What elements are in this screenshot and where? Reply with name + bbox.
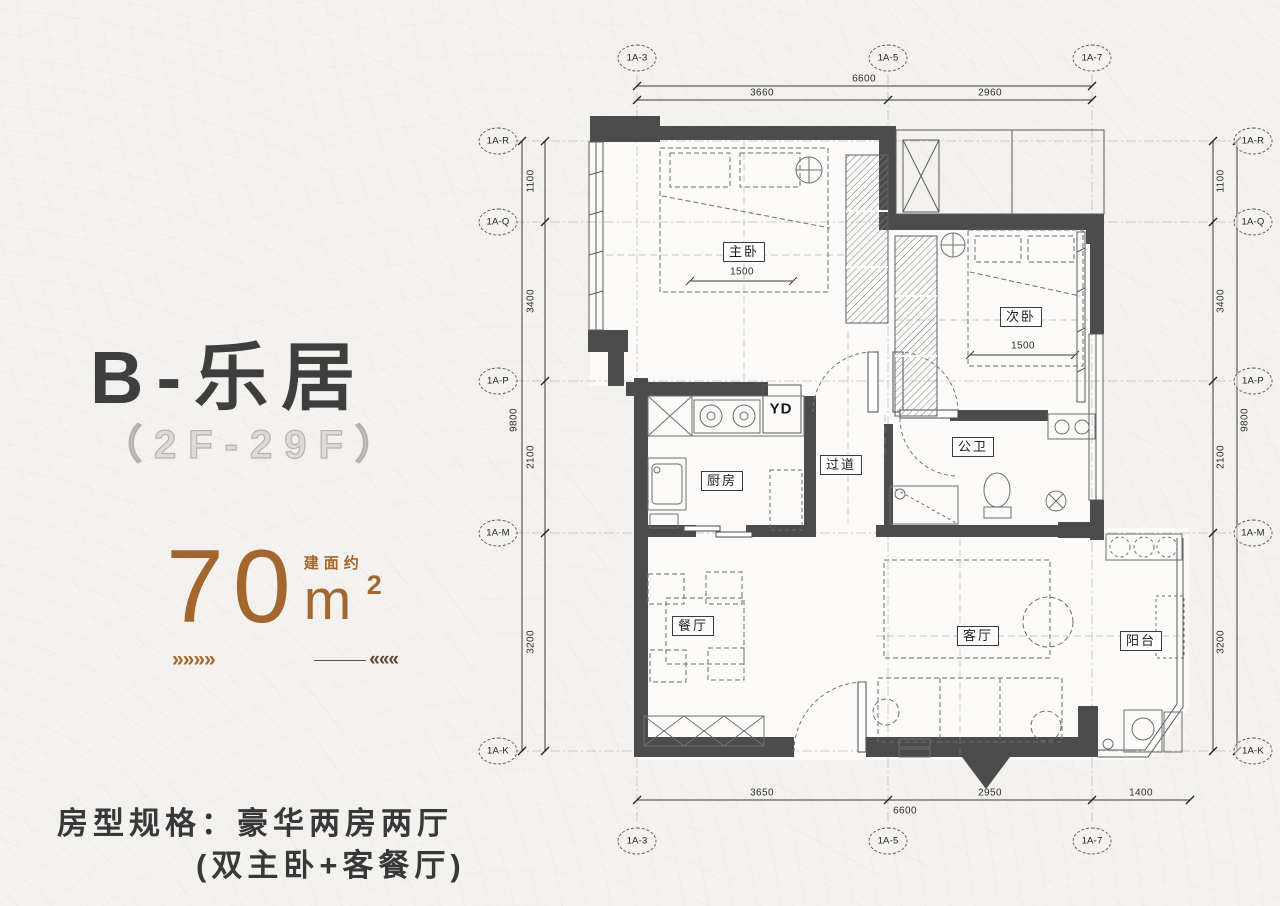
grid-bubble-row-1-right: 1A-R xyxy=(1234,128,1273,155)
spec-line-2: (双主卧+客餐厅) xyxy=(196,840,466,885)
area-superscript: 2 xyxy=(367,570,382,601)
dim-top-seg-2: 2960 xyxy=(978,88,1002,99)
area-unit-block: 建面约 m xyxy=(304,538,364,624)
dim-left-seg-4: 3200 xyxy=(526,630,537,654)
room-label-master-bedroom: 主卧 xyxy=(723,242,765,262)
decorative-arrows: »»»» ««« xyxy=(172,648,398,672)
dim-left-total: 9800 xyxy=(509,408,520,432)
spec-line-1: 房型规格：豪华两房两厅 xyxy=(57,798,453,843)
dim-second-bed: 1500 xyxy=(1011,341,1035,352)
area-value: 70 xyxy=(166,538,300,637)
floor-range: （2F-29F） xyxy=(102,412,407,470)
grid-label: 1A-M xyxy=(1241,528,1265,539)
grid-bubble-col-2: 1A-5 xyxy=(869,45,908,72)
room-label-bathroom: 公卫 xyxy=(952,437,994,457)
room-label-second-bedroom: 次卧 xyxy=(1000,307,1042,327)
dim-right-seg-1: 1100 xyxy=(1216,169,1227,192)
grid-bubble-col-2-bottom: 1A-5 xyxy=(869,828,908,855)
room-label-dining-room: 餐厅 xyxy=(672,616,714,636)
dim-left-seg-3: 2100 xyxy=(526,445,537,469)
grid-bubble-row-3-right: 1A-P xyxy=(1234,368,1273,395)
room-label-kitchen: 厨房 xyxy=(701,471,743,491)
area-figure: 70 建面约 m 2 xyxy=(166,538,382,637)
grid-label: 1A-M xyxy=(486,528,510,539)
dim-left-seg-1: 1100 xyxy=(526,169,537,192)
decorative-line xyxy=(314,660,366,661)
room-label-living-room: 客厅 xyxy=(957,626,999,646)
grid-label: 1A-K xyxy=(487,746,509,757)
grid-label: 1A-P xyxy=(487,376,509,387)
dim-bottom-total: 6600 xyxy=(893,806,917,817)
dim-top-total: 6600 xyxy=(852,74,876,85)
dim-bottom-seg-3: 1400 xyxy=(1129,788,1153,799)
dim-top-seg-1: 3660 xyxy=(750,88,774,99)
dim-right-seg-4: 3200 xyxy=(1216,630,1227,654)
grid-bubble-row-5-right: 1A-K xyxy=(1234,738,1273,765)
grid-bubble-row-3: 1A-P xyxy=(479,368,518,395)
grid-label: 1A-Q xyxy=(1242,217,1265,228)
grid-bubble-col-1-bottom: 1A-3 xyxy=(618,828,657,855)
dim-bottom-seg-1: 3650 xyxy=(750,788,774,799)
chevrons-left-group: ««« xyxy=(314,649,398,671)
area-unit: m xyxy=(304,577,364,624)
grid-label: 1A-5 xyxy=(878,836,899,847)
grid-label: 1A-3 xyxy=(627,836,648,847)
grid-bubble-row-5: 1A-K xyxy=(479,738,518,765)
dim-bottom-seg-2: 2950 xyxy=(978,788,1002,799)
grid-label: 1A-7 xyxy=(1082,836,1103,847)
room-label-hallway: 过道 xyxy=(820,455,862,475)
grid-label: 1A-K xyxy=(1242,746,1264,757)
grid-bubble-row-4-right: 1A-M xyxy=(1234,520,1273,547)
grid-bubble-row-2: 1A-Q xyxy=(479,209,518,236)
unit-title: B-乐居 xyxy=(90,318,368,425)
grid-bubble-col-3: 1A-7 xyxy=(1073,45,1112,72)
grid-label: 1A-P xyxy=(1242,376,1264,387)
dim-right-seg-2: 3400 xyxy=(1216,289,1227,313)
grid-label: 1A-5 xyxy=(878,53,899,64)
grid-bubble-col-3-bottom: 1A-7 xyxy=(1073,828,1112,855)
grid-label: 1A-R xyxy=(487,136,509,147)
grid-bubble-row-2-right: 1A-Q xyxy=(1234,209,1273,236)
chevrons-left-icon: ««« xyxy=(369,649,398,671)
grid-label: 1A-3 xyxy=(627,53,648,64)
dim-right-total: 9800 xyxy=(1240,408,1251,432)
grid-bubble-row-4: 1A-M xyxy=(479,520,518,547)
dim-left-seg-2: 3400 xyxy=(526,289,537,313)
grid-label: 1A-R xyxy=(1242,136,1264,147)
grid-label: 1A-7 xyxy=(1082,53,1103,64)
dim-right-seg-3: 2100 xyxy=(1216,445,1227,469)
grid-label: 1A-Q xyxy=(487,217,510,228)
grid-bubble-col-1: 1A-3 xyxy=(618,45,657,72)
dim-master-bed: 1500 xyxy=(730,267,754,278)
room-label-balcony: 阳台 xyxy=(1120,631,1162,651)
room-label-laundry: YD xyxy=(770,401,793,418)
chevrons-right-icon: »»»» xyxy=(172,648,215,672)
grid-bubble-row-1: 1A-R xyxy=(479,128,518,155)
